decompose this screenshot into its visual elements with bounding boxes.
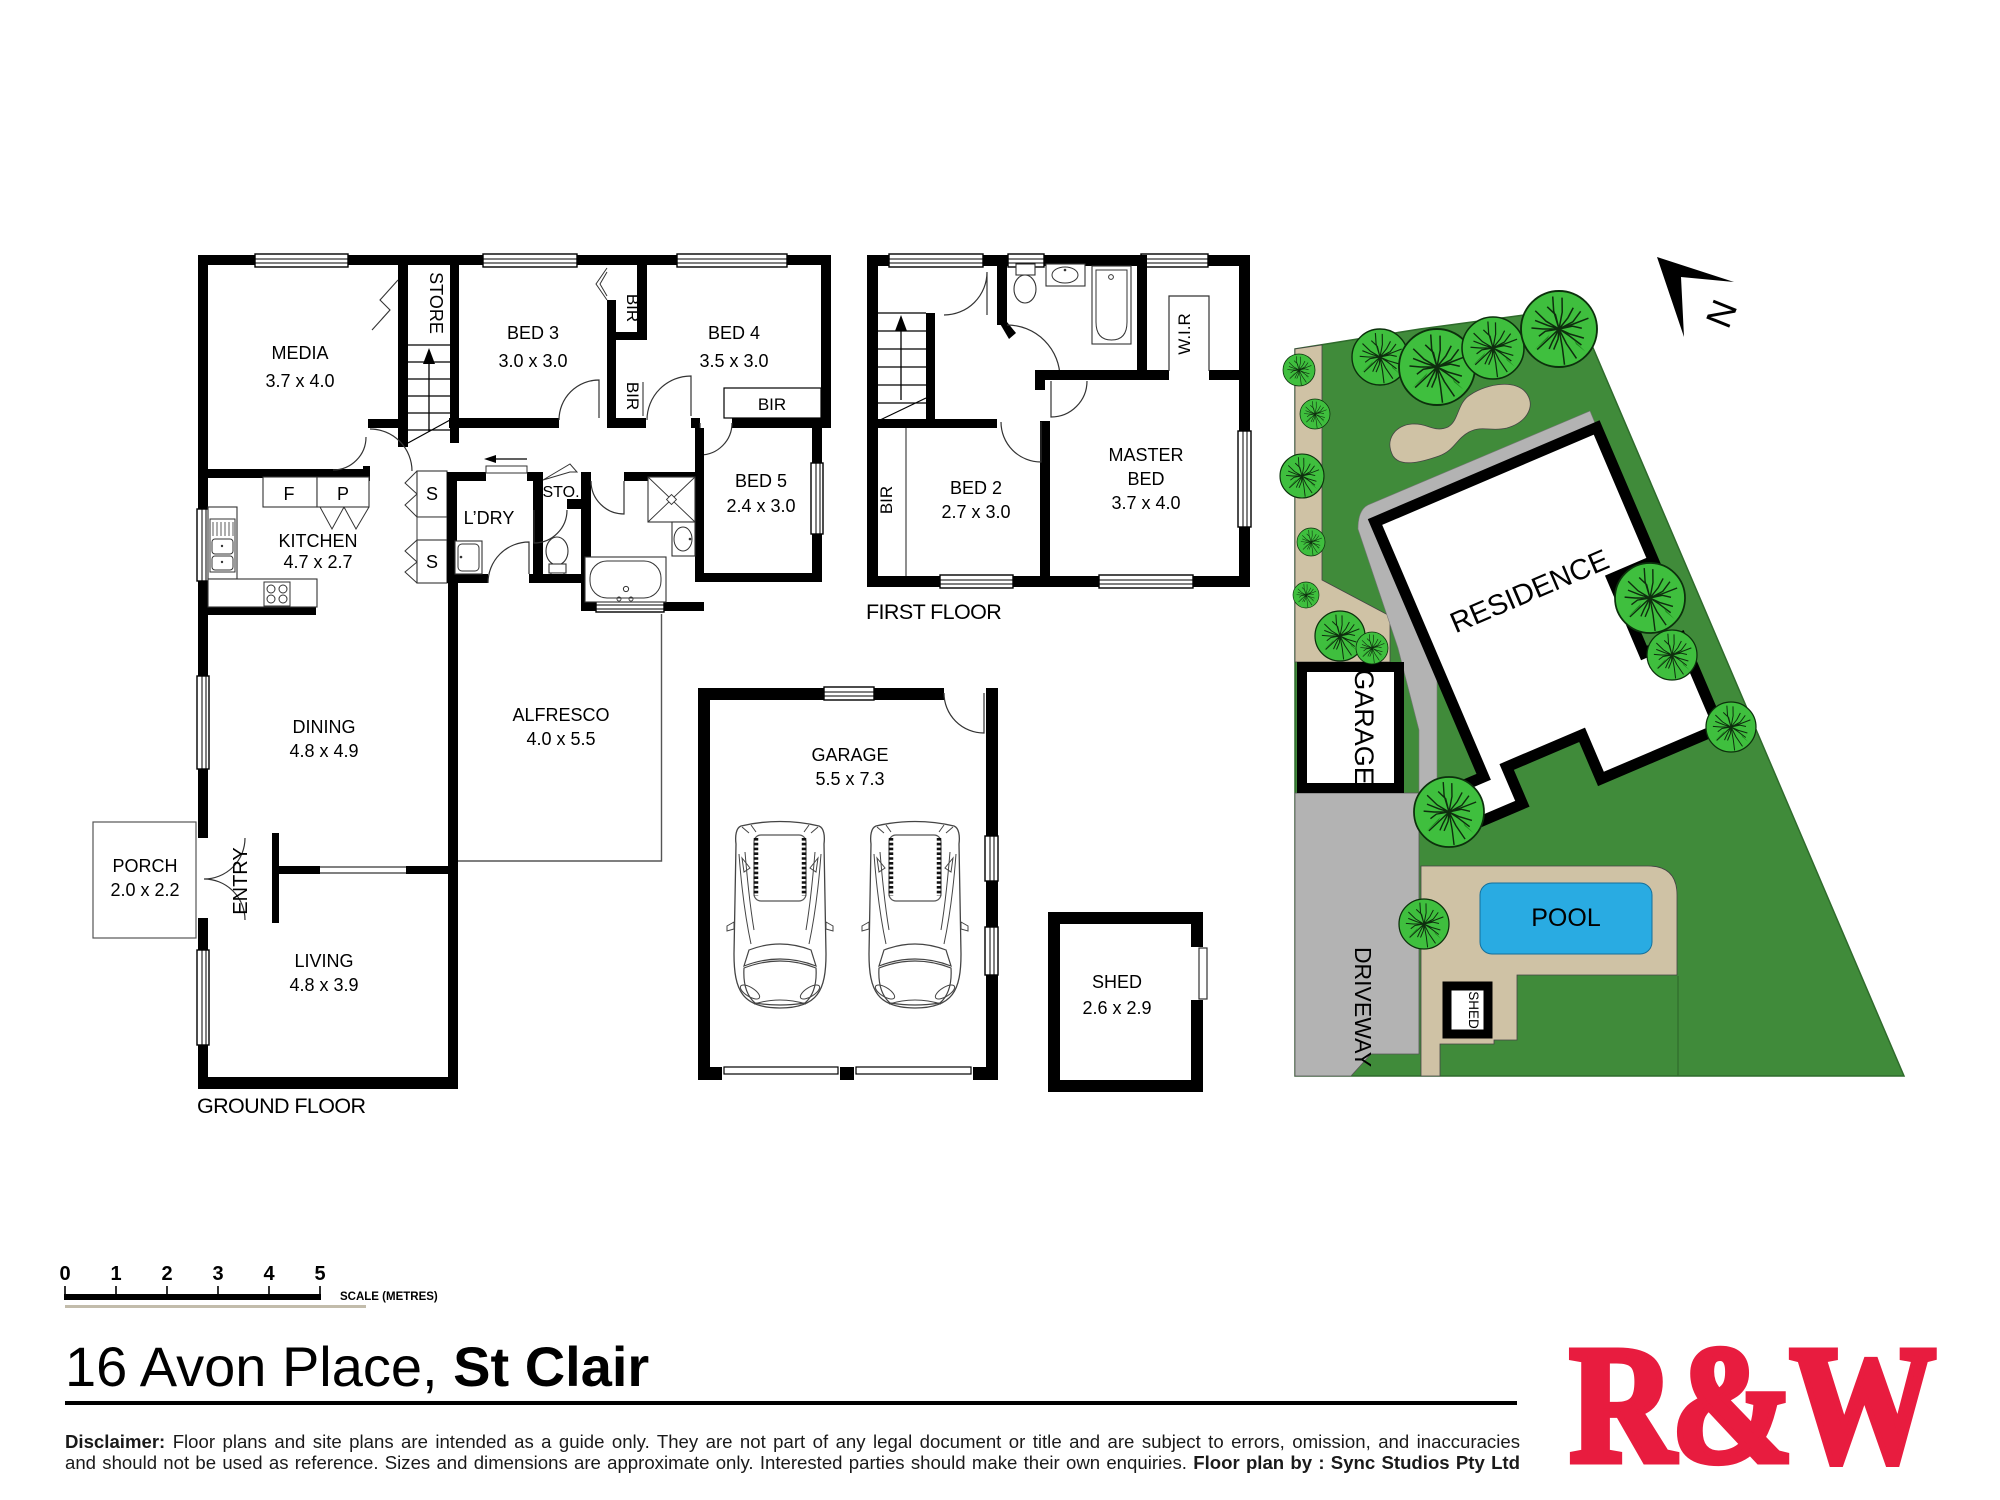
svg-text:4.0 x 5.5: 4.0 x 5.5 (526, 729, 595, 749)
svg-text:SHED: SHED (1466, 991, 1481, 1029)
svg-text:BIR: BIR (623, 382, 642, 410)
svg-text:N: N (1698, 294, 1746, 333)
svg-text:DRIVEWAY: DRIVEWAY (1350, 947, 1376, 1067)
svg-text:STO.: STO. (542, 484, 579, 501)
svg-text:SCALE (METRES): SCALE (METRES) (340, 1291, 438, 1303)
svg-text:BED: BED (1127, 469, 1164, 489)
svg-text:BED 4: BED 4 (708, 323, 760, 343)
svg-text:3.5 x 3.0: 3.5 x 3.0 (699, 351, 768, 371)
svg-text:GARAGE: GARAGE (1349, 669, 1379, 785)
svg-text:PORCH: PORCH (112, 856, 177, 876)
svg-text:2: 2 (161, 1263, 172, 1285)
svg-text:KITCHEN: KITCHEN (278, 531, 357, 551)
svg-text:SHED: SHED (1092, 972, 1142, 992)
svg-text:BIR: BIR (877, 486, 896, 514)
svg-text:5.5 x 7.3: 5.5 x 7.3 (815, 769, 884, 789)
svg-text:DINING: DINING (293, 717, 356, 737)
svg-text:BED 5: BED 5 (735, 471, 787, 491)
svg-text:4.7 x 2.7: 4.7 x 2.7 (283, 552, 352, 572)
svg-text:3.0 x 3.0: 3.0 x 3.0 (498, 351, 567, 371)
svg-text:R&W: R&W (1570, 1313, 1934, 1499)
svg-text:S: S (426, 552, 438, 572)
svg-text:3.7 x 4.0: 3.7 x 4.0 (1111, 493, 1180, 513)
svg-text:GROUND FLOOR: GROUND FLOOR (197, 1094, 365, 1118)
svg-text:BED 3: BED 3 (507, 323, 559, 343)
svg-text:ALFRESCO: ALFRESCO (512, 705, 609, 725)
svg-text:3.7 x 4.0: 3.7 x 4.0 (265, 371, 334, 391)
svg-text:2.6 x 2.9: 2.6 x 2.9 (1082, 998, 1151, 1018)
svg-text:LIVING: LIVING (294, 951, 353, 971)
svg-text:2.7 x 3.0: 2.7 x 3.0 (941, 502, 1010, 522)
svg-text:STORE: STORE (426, 272, 446, 334)
svg-text:5: 5 (314, 1263, 325, 1285)
svg-text:1: 1 (110, 1263, 121, 1285)
svg-text:BIR: BIR (623, 294, 642, 322)
svg-text:2.4 x 3.0: 2.4 x 3.0 (726, 496, 795, 516)
svg-text:0: 0 (59, 1263, 70, 1285)
svg-text:BIR: BIR (758, 395, 786, 414)
svg-text:BED 2: BED 2 (950, 478, 1002, 498)
svg-text:S: S (426, 484, 438, 504)
svg-text:4.8 x 3.9: 4.8 x 3.9 (289, 975, 358, 995)
svg-text:W.I.R: W.I.R (1175, 313, 1194, 355)
svg-text:4.8 x 4.9: 4.8 x 4.9 (289, 741, 358, 761)
svg-text:GARAGE: GARAGE (811, 745, 888, 765)
svg-text:POOL: POOL (1531, 904, 1601, 932)
svg-text:FIRST FLOOR: FIRST FLOOR (866, 600, 1001, 624)
svg-text:3: 3 (212, 1263, 223, 1285)
svg-text:MASTER: MASTER (1108, 445, 1183, 465)
svg-text:4: 4 (263, 1263, 275, 1285)
svg-text:L’DRY: L’DRY (464, 508, 515, 528)
svg-text:ENTRY: ENTRY (230, 847, 252, 914)
svg-text:F: F (284, 484, 295, 504)
svg-text:2.0 x 2.2: 2.0 x 2.2 (110, 880, 179, 900)
svg-text:MEDIA: MEDIA (271, 343, 328, 363)
svg-text:P: P (337, 484, 349, 504)
